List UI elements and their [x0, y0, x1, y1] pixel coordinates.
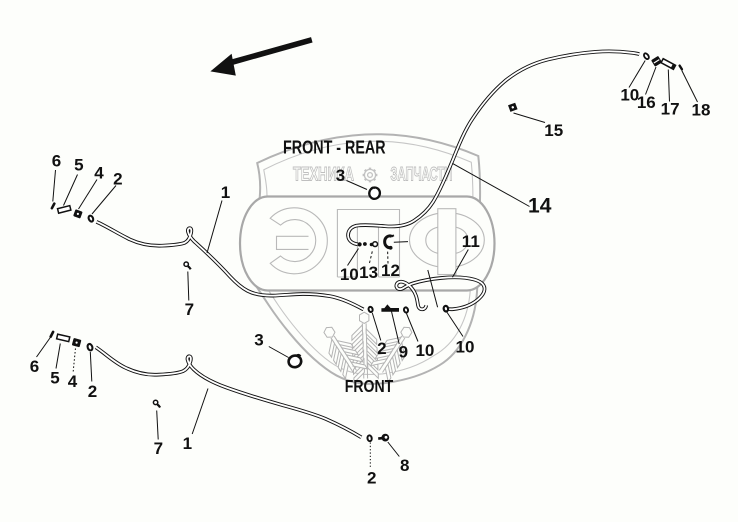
svg-text:8: 8 — [400, 456, 409, 475]
svg-text:1: 1 — [183, 434, 192, 453]
svg-text:3: 3 — [336, 166, 345, 185]
svg-text:FRONT: FRONT — [345, 376, 394, 396]
svg-text:FRONT - REAR: FRONT - REAR — [283, 138, 386, 158]
svg-text:2: 2 — [88, 382, 97, 401]
svg-text:3: 3 — [254, 331, 263, 350]
svg-text:4: 4 — [94, 163, 104, 182]
svg-text:11: 11 — [462, 232, 480, 251]
svg-text:10: 10 — [340, 265, 359, 284]
svg-text:2: 2 — [367, 469, 376, 488]
svg-text:2: 2 — [113, 170, 122, 189]
svg-text:13: 13 — [359, 263, 378, 282]
svg-text:18: 18 — [692, 101, 711, 120]
svg-text:10: 10 — [415, 341, 434, 360]
svg-text:9: 9 — [399, 343, 408, 362]
svg-text:2: 2 — [377, 339, 386, 358]
svg-text:7: 7 — [154, 439, 163, 458]
svg-text:7: 7 — [185, 300, 194, 319]
svg-text:15: 15 — [544, 121, 563, 140]
svg-text:17: 17 — [661, 100, 680, 119]
svg-text:10: 10 — [456, 338, 475, 357]
svg-text:6: 6 — [52, 151, 61, 170]
svg-text:6: 6 — [30, 357, 39, 376]
svg-text:4: 4 — [68, 372, 78, 391]
svg-text:1: 1 — [221, 183, 230, 202]
svg-text:14: 14 — [528, 195, 552, 218]
svg-text:16: 16 — [637, 93, 656, 112]
svg-text:12: 12 — [381, 261, 400, 280]
svg-text:5: 5 — [50, 369, 59, 388]
svg-text:5: 5 — [74, 155, 83, 174]
